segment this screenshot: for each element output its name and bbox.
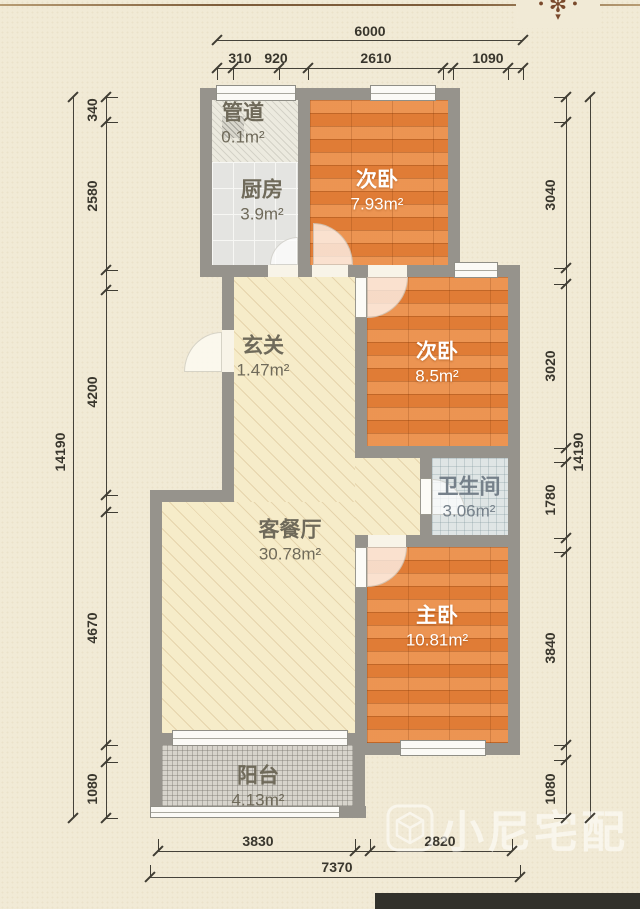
dim-stub [106, 495, 118, 496]
dim-stub [355, 839, 356, 851]
dimension-line-left-segments [106, 97, 107, 818]
wall-kitchen-left [200, 88, 212, 277]
door-opening-kitchen [268, 265, 298, 277]
dim-stub [106, 745, 118, 746]
room-name: 卫生间 [438, 473, 501, 500]
door-leaf-master [355, 547, 367, 588]
room-area: 8.5m² [415, 366, 458, 388]
dim-stub [106, 97, 118, 98]
wall-right-exterior [508, 265, 520, 755]
dim-stub [279, 68, 280, 80]
dim-bottom-seg: 3830 [242, 833, 273, 849]
dim-stub [554, 462, 566, 463]
ornament-dot-icon: ● [533, 0, 548, 8]
room-name: 厨房 [240, 176, 283, 203]
ornament-dot-icon: ● [567, 0, 582, 8]
entry-door-opening [222, 330, 234, 372]
dim-stub [106, 762, 118, 763]
dim-left-total: 14190 [52, 433, 68, 472]
dim-stub [554, 552, 566, 553]
room-name: 次卧 [415, 338, 458, 365]
label-bedroom-top: 次卧 7.93m² [351, 166, 404, 215]
dim-stub [106, 818, 118, 819]
floor-plan-page: ●✻● ▾ 管道 0.1 [0, 0, 640, 909]
dim-stub [554, 818, 566, 819]
room-area: 7.93m² [351, 194, 404, 216]
label-foyer: 玄关 1.47m² [237, 332, 290, 381]
watermark: 小尼宅配 [386, 796, 628, 860]
dim-stub [308, 68, 309, 80]
dim-stub [554, 745, 566, 746]
dimension-line-top-segments [217, 68, 523, 69]
dim-top-seg: 310 [228, 50, 251, 66]
door-leaf-bedroom-mid [355, 277, 367, 318]
dim-top-total: 6000 [354, 23, 385, 39]
dim-left-seg: 4200 [84, 376, 100, 407]
dim-stub [520, 865, 521, 877]
window-master-bottom [400, 740, 486, 756]
room-area: 30.78m² [259, 544, 322, 566]
window-bedroom-mid [454, 262, 498, 278]
door-opening-bedroom-mid [368, 265, 407, 277]
dim-stub [106, 122, 118, 123]
label-balcony: 阳台 4.13m² [232, 762, 285, 811]
wall-foyer-left [222, 277, 234, 502]
door-leaf-bathroom [420, 478, 432, 515]
wall-balcony-cap [340, 806, 366, 818]
dim-stub [508, 68, 509, 80]
label-master: 主卧 10.81m² [406, 602, 468, 651]
dim-stub [523, 68, 524, 80]
dim-stub [217, 68, 218, 80]
label-living: 客餐厅 30.78m² [259, 516, 322, 565]
dim-stub [554, 268, 566, 269]
room-area: 10.81m² [406, 630, 468, 652]
wall-bathroom-top [355, 446, 520, 458]
dim-stub [106, 270, 118, 271]
dim-stub [106, 290, 118, 291]
dim-stub [443, 68, 444, 80]
dimension-line-right-total [590, 97, 591, 818]
dim-right-total: 14190 [570, 433, 586, 472]
wall-bedroom-top-right [448, 88, 460, 277]
dim-stub [554, 97, 566, 98]
dim-stub [150, 865, 151, 877]
dim-left-seg: 1080 [84, 773, 100, 804]
room-name: 主卧 [406, 602, 468, 629]
dimension-line-right-segments [566, 97, 567, 818]
label-duct: 管道 0.1m² [221, 99, 264, 148]
door-opening-bedroom-top [312, 265, 348, 277]
room-area: 3.06m² [438, 501, 501, 523]
dim-top-seg: 2610 [360, 50, 391, 66]
room-area: 3.9m² [240, 204, 283, 226]
dim-stub [554, 448, 566, 449]
wall-step [150, 490, 234, 502]
room-name: 客餐厅 [259, 516, 322, 543]
room-name: 玄关 [237, 332, 290, 359]
dim-top-seg: 1090 [472, 50, 503, 66]
dim-stub [158, 839, 159, 851]
watermark-cube-icon [386, 804, 434, 852]
dim-stub [554, 284, 566, 285]
label-kitchen: 厨房 3.9m² [240, 176, 283, 225]
dimension-line-left-total [73, 97, 74, 818]
room-living-corridor [355, 458, 420, 535]
room-name: 管道 [221, 99, 264, 126]
room-area: 1.47m² [237, 360, 290, 382]
dim-stub [106, 512, 118, 513]
room-area: 0.1m² [221, 127, 264, 149]
dimension-line-top-total [217, 40, 523, 41]
watermark-text: 小尼宅配 [440, 796, 628, 860]
dimension-line-bottom-total [150, 877, 520, 878]
wall-kitchen-bedroom-divider [298, 100, 310, 277]
dim-left-seg: 4670 [84, 612, 100, 643]
balcony-sliding-door [172, 730, 348, 746]
dim-right-seg: 3020 [542, 350, 558, 381]
entry-door-arc [184, 332, 222, 372]
dim-left-seg: 2580 [84, 180, 100, 211]
label-bedroom-mid: 次卧 8.5m² [415, 338, 458, 387]
room-name: 阳台 [232, 762, 285, 789]
dim-stub [233, 68, 234, 80]
label-bathroom: 卫生间 3.06m² [438, 473, 501, 522]
room-name: 次卧 [351, 166, 404, 193]
dim-bottom-total: 7370 [321, 859, 352, 875]
dim-stub [370, 839, 371, 851]
dim-stub [512, 839, 513, 851]
ornament-icon: ●✻● ▾ [516, 0, 600, 28]
dim-stub [453, 68, 454, 80]
room-area: 4.13m² [232, 790, 285, 812]
dim-right-seg: 3040 [542, 179, 558, 210]
dim-right-seg: 3840 [542, 632, 558, 663]
door-opening-master [368, 535, 406, 547]
bottom-dark-bar [375, 893, 640, 909]
dim-right-seg: 1780 [542, 484, 558, 515]
dim-stub [554, 122, 566, 123]
wall-living-left [150, 502, 162, 745]
window-bedroom-top [370, 85, 436, 101]
ornament-tail-icon: ▾ [516, 12, 600, 23]
dim-stub [554, 760, 566, 761]
room-foyer [234, 277, 355, 502]
dim-left-seg: 340 [84, 98, 100, 121]
dim-stub [554, 538, 566, 539]
